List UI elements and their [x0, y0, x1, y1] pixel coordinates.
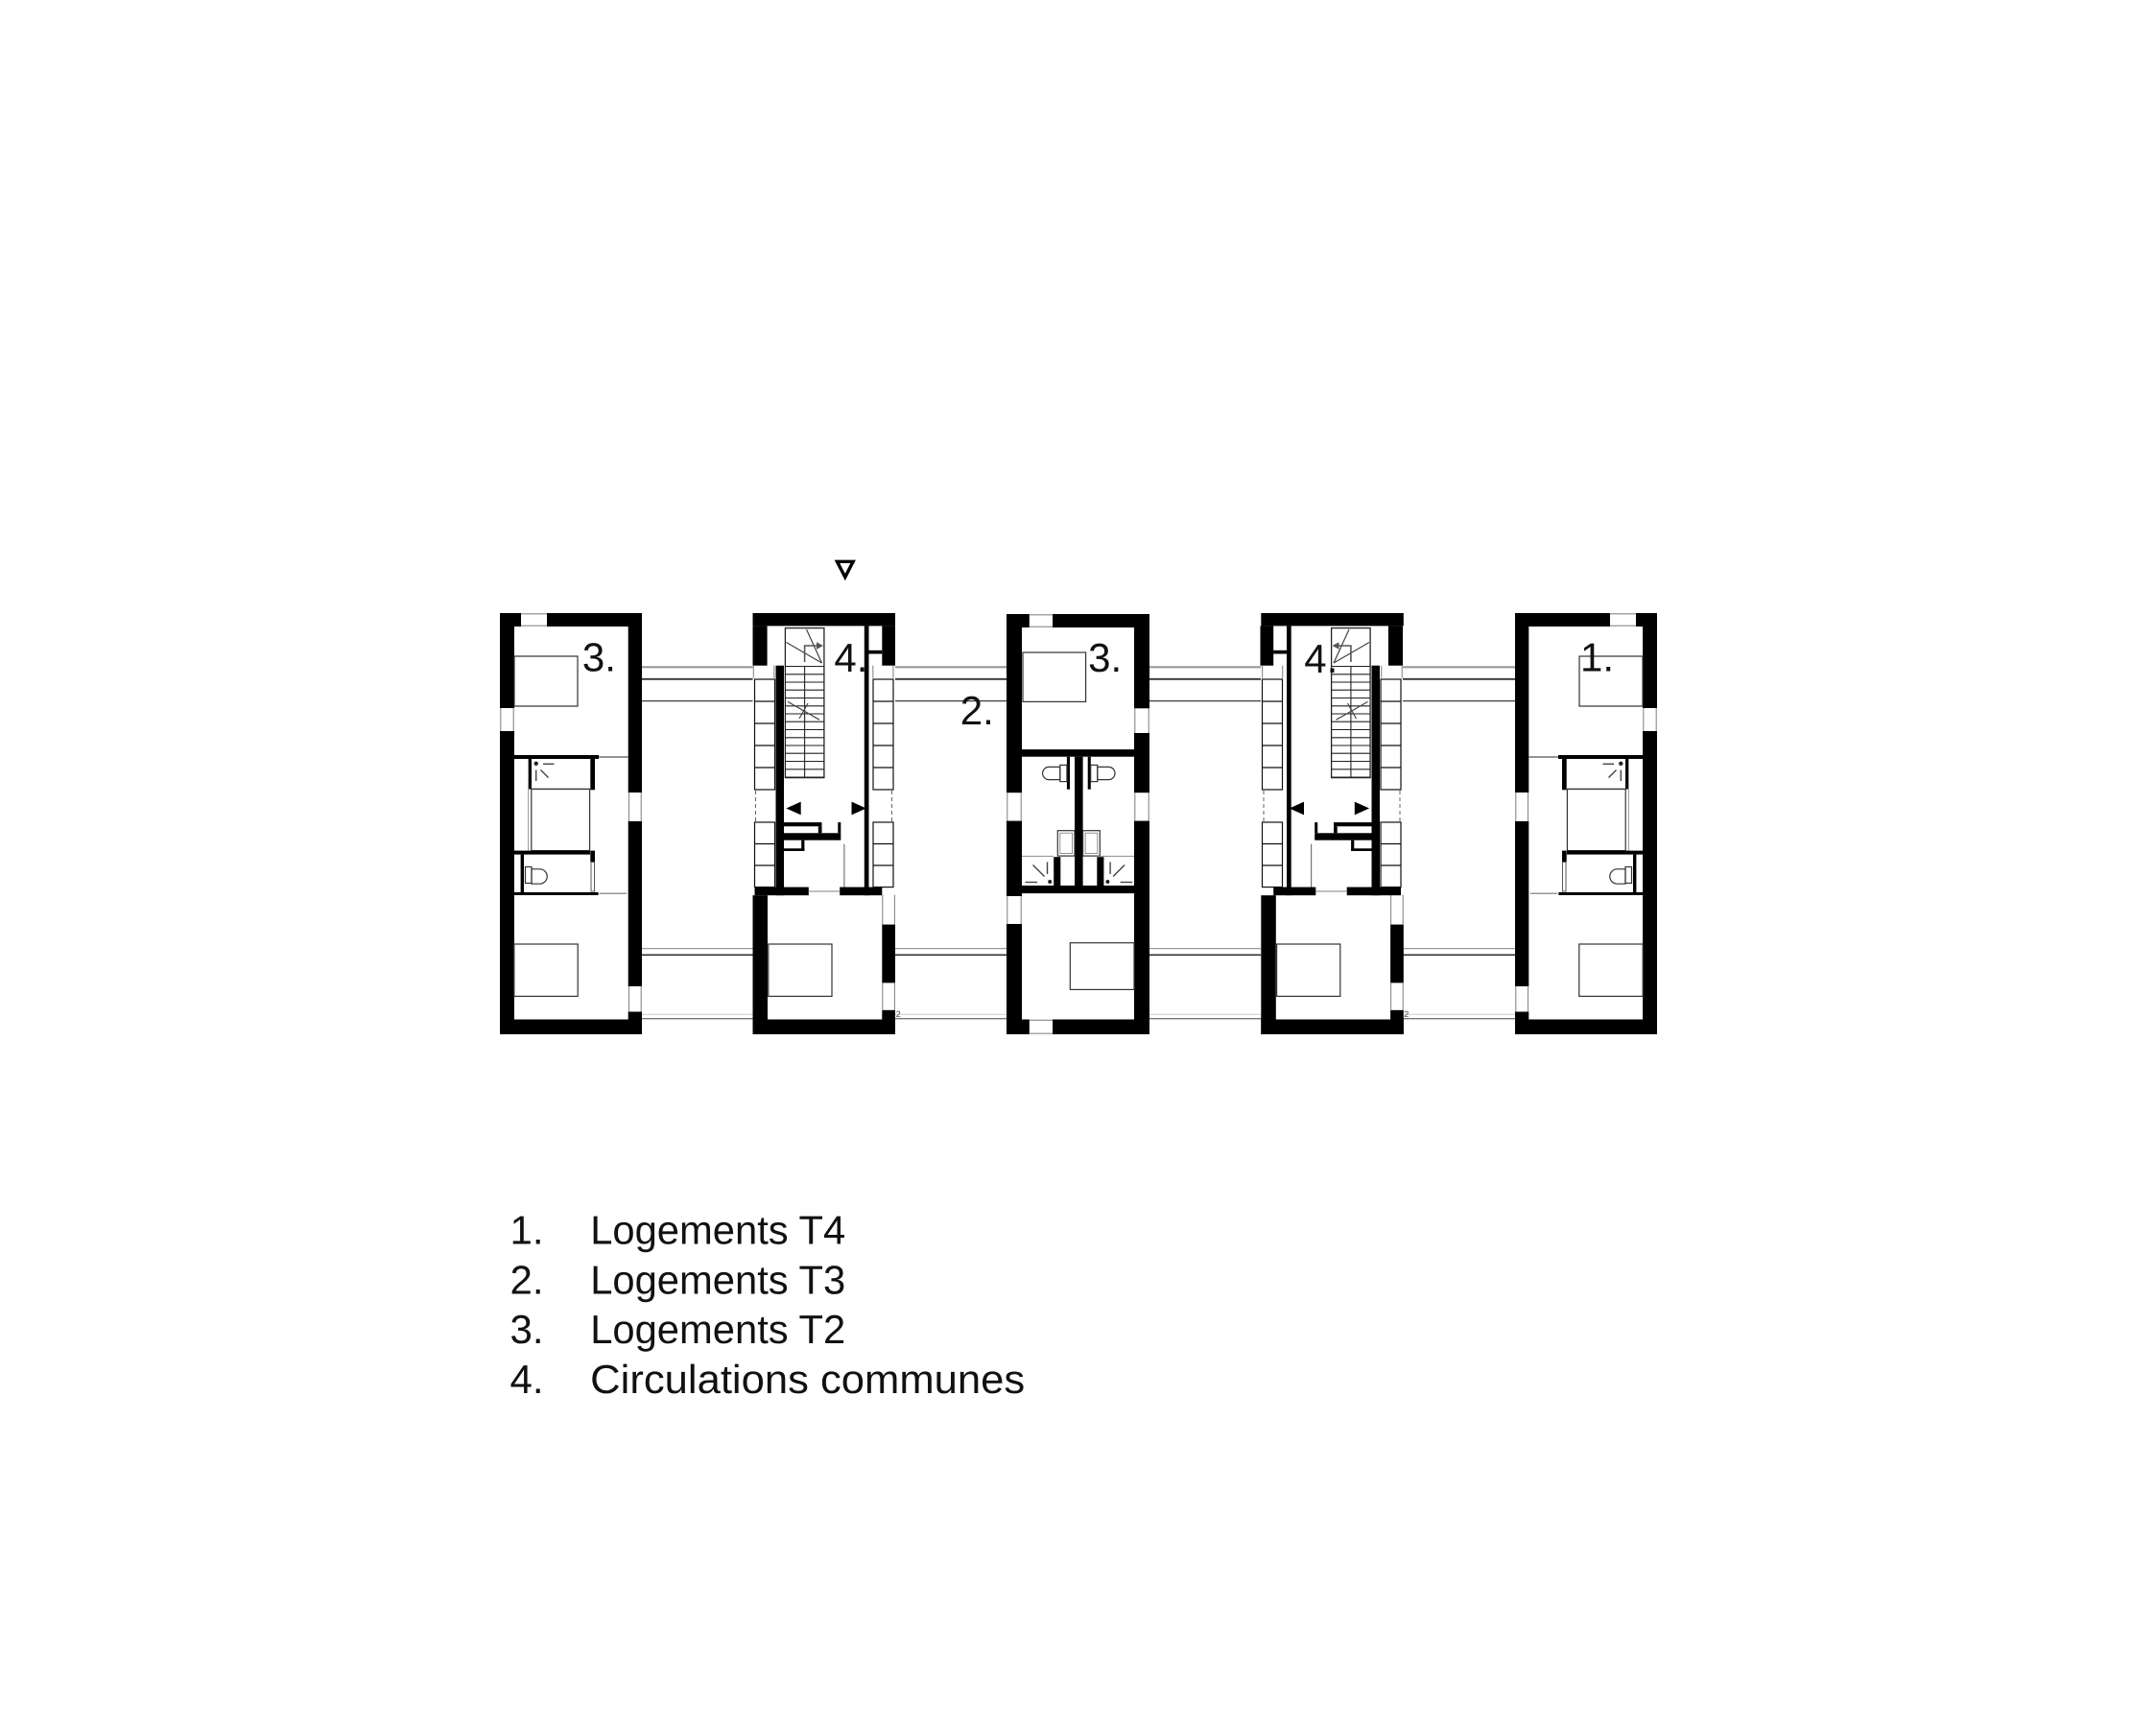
svg-text:3.: 3. [1088, 635, 1122, 680]
svg-text:3.: 3. [510, 1307, 544, 1352]
svg-text:Circulations communes: Circulations communes [590, 1357, 1025, 1402]
svg-text:2.: 2. [960, 688, 994, 733]
svg-text:3.: 3. [582, 634, 616, 679]
svg-text:Logements T4: Logements T4 [590, 1208, 845, 1253]
svg-text:1.: 1. [510, 1208, 544, 1253]
svg-text:2: 2 [896, 1009, 901, 1019]
svg-text:Logements T2: Logements T2 [590, 1307, 845, 1352]
svg-text:Logements T3: Logements T3 [590, 1257, 845, 1302]
svg-text:4.: 4. [1304, 636, 1338, 681]
svg-text:2: 2 [1404, 1009, 1409, 1019]
svg-text:2.: 2. [510, 1257, 544, 1302]
svg-text:4.: 4. [510, 1357, 544, 1402]
svg-text:4.: 4. [834, 635, 867, 680]
svg-text:1.: 1. [1580, 634, 1614, 679]
